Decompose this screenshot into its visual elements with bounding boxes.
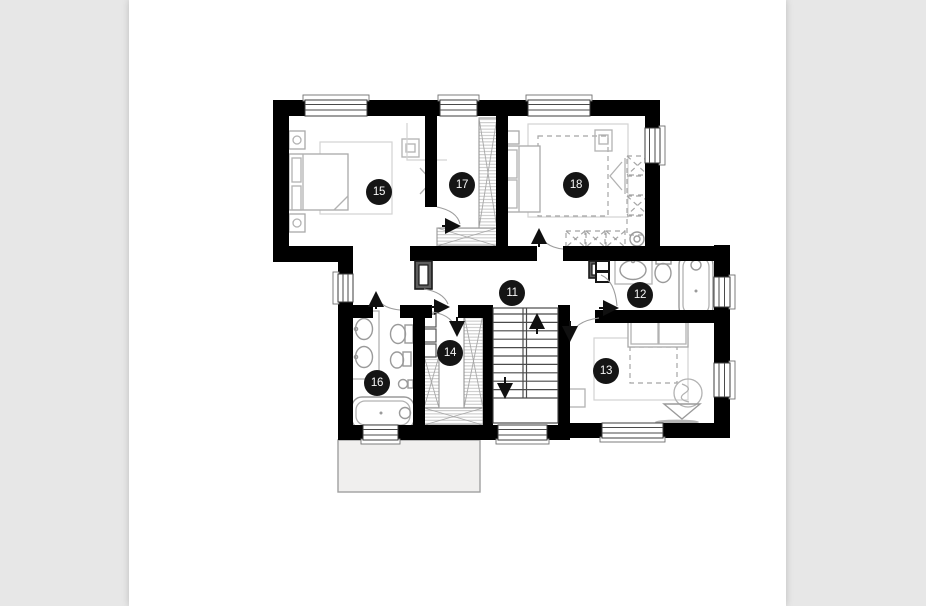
bathroom-16-fixtures bbox=[352, 311, 414, 429]
room-number-14: 14 bbox=[444, 347, 457, 359]
floor-plan: 1112131415161718 bbox=[0, 0, 926, 606]
bathroom-12-fixtures bbox=[615, 253, 713, 319]
room-number-17: 17 bbox=[456, 179, 468, 191]
furniture-bedroom-15 bbox=[289, 123, 447, 232]
bed bbox=[505, 146, 540, 212]
cabinet-row bbox=[566, 231, 625, 247]
towel-radiator bbox=[399, 380, 408, 389]
dresser bbox=[402, 139, 419, 157]
canvas: { "document": { "kind": "floor-plan-draw… bbox=[0, 0, 926, 606]
mirror-symbol bbox=[610, 162, 622, 190]
porch-roof bbox=[338, 440, 480, 492]
shaft-box bbox=[596, 261, 609, 271]
toilet bbox=[391, 325, 406, 344]
vanity-counter bbox=[352, 311, 379, 379]
shaft-box bbox=[596, 272, 609, 282]
toilet bbox=[655, 264, 671, 283]
room-number-18: 18 bbox=[570, 179, 582, 191]
room-number-12: 12 bbox=[634, 289, 646, 301]
nightstand bbox=[289, 131, 305, 149]
bidet bbox=[391, 352, 404, 368]
nightstand bbox=[289, 214, 305, 232]
staircase bbox=[493, 308, 558, 423]
room-number-13: 13 bbox=[600, 365, 612, 377]
sink bbox=[620, 261, 646, 280]
room-number-16: 16 bbox=[371, 377, 383, 389]
room-number-15: 15 bbox=[373, 186, 385, 198]
bidet-tank bbox=[403, 352, 411, 366]
room-number-11: 11 bbox=[506, 287, 517, 299]
furniture-bedroom-13 bbox=[567, 317, 702, 424]
sink-round bbox=[630, 232, 644, 246]
toilet-tank bbox=[405, 325, 413, 343]
dresser bbox=[595, 130, 612, 151]
rug bbox=[630, 347, 677, 383]
wardrobe-dashed bbox=[627, 156, 648, 235]
